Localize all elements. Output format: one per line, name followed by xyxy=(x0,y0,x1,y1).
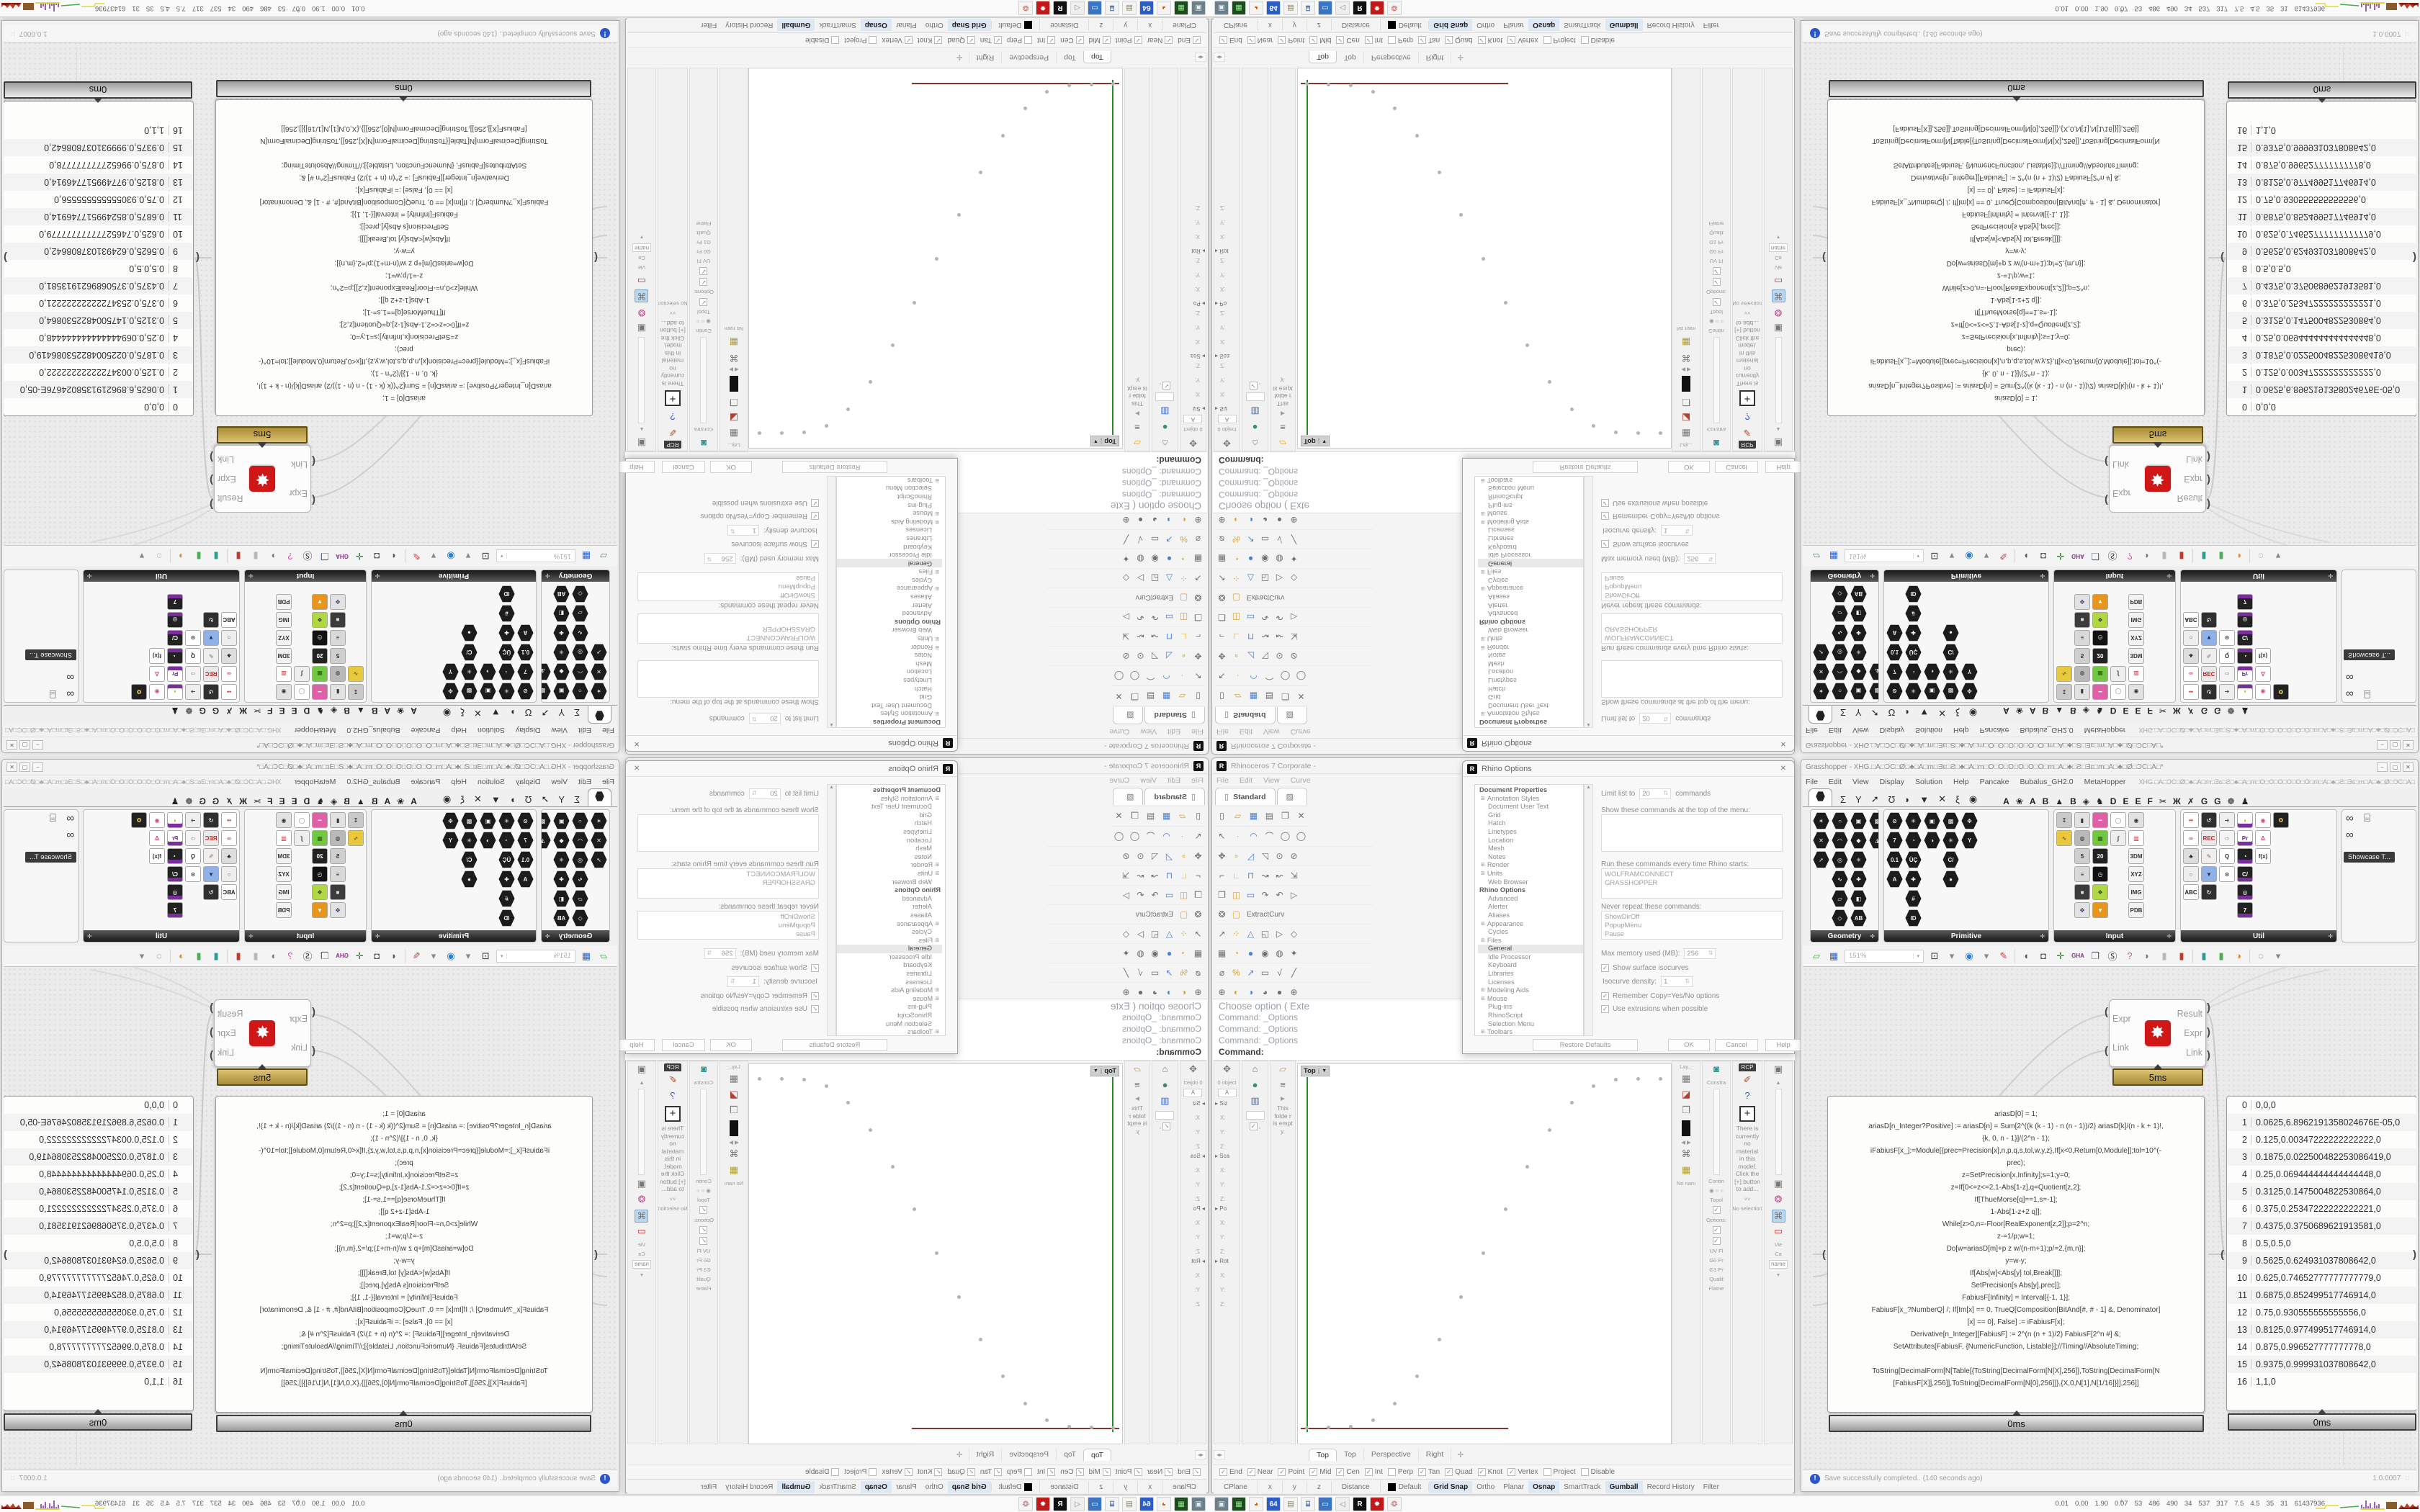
category-tab[interactable]: ◉ xyxy=(442,706,452,720)
viewport-title[interactable]: Top | ▼ xyxy=(1090,436,1119,446)
palette-icon[interactable]: ◿ xyxy=(1162,649,1176,664)
viewport-tab-right[interactable]: Right xyxy=(1419,52,1452,64)
data-row[interactable]: 20.125,0.00347222222222222,0 xyxy=(2227,1131,2416,1148)
limit-spinner[interactable]: 20 xyxy=(1639,788,1671,799)
toolbar-icon[interactable]: ▦ xyxy=(1247,689,1260,704)
viewport-tab-top[interactable]: Top xyxy=(1083,52,1111,64)
expand-icon[interactable]: ✛ xyxy=(1870,573,1875,580)
palette-icon[interactable]: ↜ xyxy=(1273,629,1286,644)
component-icon[interactable]: ◧ xyxy=(1850,605,1867,622)
palette-icon[interactable]: ⊕ xyxy=(1287,985,1301,1000)
osnap-mid[interactable]: ✓Mid xyxy=(1089,1468,1111,1476)
tree-item-render[interactable]: ⊞Render xyxy=(837,861,942,870)
osnap-point[interactable]: ✓Point xyxy=(1278,36,1304,44)
checkbox-icon[interactable]: ✓ xyxy=(1713,1226,1721,1234)
checkbox-icon[interactable]: ✓ xyxy=(1103,36,1111,44)
data-row[interactable]: 10.0625,6.8962191358024676E-05,0 xyxy=(2227,1114,2416,1131)
osnap-knot[interactable]: ✓Knot xyxy=(918,1468,943,1476)
script-panel[interactable]: ariasD[0] = 1;ariasD[n_Integer?Positive]… xyxy=(215,1096,593,1413)
component-icon[interactable]: ▣ xyxy=(1924,812,1940,829)
checkbox[interactable]: ✓, xyxy=(1250,382,1260,390)
component-icon[interactable]: ↻ xyxy=(2201,884,2217,900)
osnap-near[interactable]: ✓Near xyxy=(1147,1468,1173,1476)
component-icon[interactable]: A xyxy=(1886,870,1903,888)
toolbar-icon[interactable]: · xyxy=(1175,669,1189,684)
panel-input-jaw[interactable]: ( xyxy=(2220,1248,2224,1261)
shell-preview-icon[interactable]: ◗ xyxy=(2141,551,2154,562)
component-icon[interactable]: ∫ xyxy=(2110,830,2126,846)
plugin-tab[interactable]: ◈ xyxy=(2083,796,2089,806)
panel-input-jaw[interactable]: ( xyxy=(196,251,200,264)
top-commands-listbox[interactable] xyxy=(1601,660,1783,698)
data-row[interactable]: 70.4375,0.3750689621913581,0 xyxy=(2227,277,2416,294)
component-icon[interactable]: ∿ xyxy=(1832,624,1848,642)
axes-widget-icon[interactable]: ✛ xyxy=(2054,551,2067,562)
tree-item-files[interactable]: ⊞Files xyxy=(1478,567,1583,576)
component-icon[interactable]: ◑ xyxy=(480,663,496,680)
toolbar-icon[interactable]: ◠ xyxy=(1160,829,1173,844)
component-icon[interactable]: ◯ xyxy=(2110,812,2126,828)
component-icon[interactable]: ✶ xyxy=(591,812,607,829)
plugin-tab[interactable]: D xyxy=(304,796,310,806)
data-row[interactable]: 50.3125,0.1475004822530864,0 xyxy=(2227,1183,2416,1200)
component-icon[interactable]: ◎ xyxy=(2237,612,2253,628)
tree-item-rhino-options[interactable]: Rhino Options xyxy=(1478,886,1583,895)
palette-icon[interactable]: ╱ xyxy=(1287,966,1301,981)
tree-item-general[interactable]: General xyxy=(837,945,942,953)
component-icon[interactable]: ⊘ xyxy=(1886,812,1903,829)
palette-icon[interactable]: ● xyxy=(1162,552,1176,567)
component-icon[interactable]: ◠ xyxy=(1832,832,1848,849)
palette-icon[interactable]: ↗ xyxy=(1215,927,1229,942)
category-tab[interactable]: ◉ xyxy=(1968,792,1978,806)
component-icon[interactable]: ▩ xyxy=(541,812,551,829)
component-icon[interactable]: PDB xyxy=(276,902,292,918)
category-tab[interactable]: ✕ xyxy=(1937,706,1948,720)
category-tab[interactable]: Ʊ xyxy=(524,793,534,806)
extract-curve-button[interactable]: ExtractCurv xyxy=(1136,594,1176,602)
capture-window-icon[interactable]: ❐ xyxy=(318,950,331,962)
toolbar-icon[interactable]: ▱ xyxy=(1231,689,1245,704)
checkbox-icon[interactable]: ✓ xyxy=(1165,1468,1173,1476)
component-icon[interactable]: ◎ xyxy=(167,884,183,900)
goggles-info-icon[interactable]: ∞ xyxy=(2342,810,2357,827)
plugin-tab[interactable]: A xyxy=(2003,796,2009,806)
component-icon[interactable]: ✕ xyxy=(1813,663,1829,680)
checkbox-icon[interactable]: ✓ xyxy=(1713,278,1721,286)
component-icon[interactable]: ABC xyxy=(2183,884,2199,900)
menu-item-solution[interactable]: Solution xyxy=(1915,778,1942,786)
data-row[interactable]: 80.5,0.5,0 xyxy=(2227,1235,2416,1252)
data-row[interactable]: 100.625,0.74652777777777779,0 xyxy=(4,225,193,243)
palette-icon[interactable]: ↗ xyxy=(1244,532,1258,547)
toolbar-tab-next[interactable]: ▨ xyxy=(1277,707,1307,724)
preview-dropdown-icon[interactable]: ▾ xyxy=(427,551,440,562)
wolfram-component[interactable]: ExprLink ✸ ResultExprLink ( ( ) ) ) xyxy=(2109,445,2206,513)
palette-icon[interactable]: ◇ xyxy=(1119,927,1133,942)
palette-icon[interactable]: % xyxy=(1177,966,1191,981)
component-icon[interactable]: ▩ xyxy=(461,683,478,700)
component-icon[interactable]: ➔ xyxy=(2219,812,2235,828)
plugin-tab[interactable]: ♞ xyxy=(2096,706,2104,716)
component-icon[interactable]: ABC xyxy=(221,884,237,900)
component-icon[interactable]: ◮ xyxy=(541,663,551,680)
tree-item-cycles[interactable]: Cycles xyxy=(837,928,942,937)
data-row[interactable]: 130.8125,0.977499517746914,0 xyxy=(2227,174,2416,191)
tree-item-rhinoscript[interactable]: RhinoScript xyxy=(1478,1012,1583,1020)
component-icon[interactable]: 0.1 xyxy=(517,644,534,661)
toolbar-icon[interactable]: ▤ xyxy=(1144,689,1157,704)
system-monitor-icon[interactable]: ▣ xyxy=(1191,1,1206,15)
data-row[interactable]: 140.875,0.996527777777778,0 xyxy=(4,156,193,174)
palette-icon[interactable]: ▦ xyxy=(1191,552,1205,567)
component-icon[interactable]: ∿ xyxy=(348,830,364,846)
selection-lasso-icon[interactable]: ◌ xyxy=(2254,551,2267,562)
palette-icon[interactable]: ◕ xyxy=(1258,513,1272,528)
status-cell-z[interactable]: z xyxy=(1307,19,1332,32)
component-icon[interactable]: Δ xyxy=(2255,830,2271,846)
grasshopper-titlebar[interactable]: Grasshopper - XHG.□A□ƆC□Ø□♣□A□m□Ǝɛ□Ƨ□♣□A… xyxy=(1801,737,2418,752)
panel-icon[interactable]: ▦ xyxy=(730,426,738,439)
menu-item-edit[interactable]: Edit xyxy=(1240,728,1252,737)
panel-input-jaw[interactable]: ( xyxy=(196,1248,200,1261)
scrollbar[interactable] xyxy=(1713,337,1720,423)
plugin-tab[interactable]: G xyxy=(2214,706,2220,716)
gha-icon[interactable]: GHA xyxy=(2071,953,2084,959)
section-header[interactable]: ▸ Po xyxy=(1215,1205,1227,1212)
top-commands-listbox[interactable] xyxy=(1601,814,1783,852)
status-toggle-osnap[interactable]: Osnap xyxy=(861,19,892,32)
red-preview-icon[interactable]: ▮ xyxy=(232,950,245,962)
menu-item-metahopper[interactable]: MetaHopper xyxy=(2084,778,2126,786)
selection-dropdown-icon[interactable]: ▾ xyxy=(135,551,148,562)
panel-output-jaw[interactable]: ) xyxy=(4,251,7,264)
checkbox-icon[interactable]: ✓ xyxy=(1250,382,1258,390)
palette-icon[interactable]: ∟ xyxy=(1229,868,1243,883)
viewport-title[interactable]: Top | ▼ xyxy=(1301,436,1330,446)
input-field[interactable] xyxy=(1246,1111,1265,1120)
plugin-tab[interactable]: ❁ xyxy=(185,796,192,806)
output-jaw[interactable]: ) xyxy=(2207,498,2210,510)
resize-grip[interactable]: ∷ xyxy=(11,1475,15,1482)
tree-item-grid[interactable]: Grid xyxy=(837,811,942,820)
osnap-mid[interactable]: ✓Mid xyxy=(1309,36,1331,44)
link-port[interactable]: Link xyxy=(2112,459,2142,469)
tree-item-idle-processor[interactable]: Idle Processor xyxy=(837,551,942,559)
menu-item-help[interactable]: Help xyxy=(1953,778,1969,786)
section-header[interactable]: ▸ Sca xyxy=(1191,1153,1205,1159)
component-icon[interactable]: ◆ xyxy=(553,832,570,849)
zoom-dropdown-icon[interactable]: ▾ xyxy=(1945,551,1958,562)
checkbox-icon[interactable]: ✓ xyxy=(1247,1468,1255,1476)
component-icon[interactable]: ◮ xyxy=(1869,663,1879,680)
tree-item-hatch[interactable]: Hatch xyxy=(1478,684,1583,693)
component-icon[interactable]: ▮ xyxy=(330,812,346,828)
component-icon[interactable]: ✳ xyxy=(461,663,478,680)
palette-icon[interactable]: ▭ xyxy=(1162,610,1176,625)
expand-icon[interactable]: ✛ xyxy=(375,933,380,940)
component-icon[interactable]: ▣ xyxy=(553,683,570,700)
component-icon[interactable]: ▩ xyxy=(1869,812,1879,829)
component-icon[interactable]: ● xyxy=(461,624,478,642)
volume-icon[interactable]: ◁ xyxy=(1335,1497,1350,1511)
panel-icon[interactable]: ⌂ xyxy=(1252,1063,1258,1076)
palette-icon[interactable]: ↗ xyxy=(1244,966,1258,981)
component-icon[interactable]: C/ xyxy=(2237,866,2253,882)
category-tab[interactable]: Y xyxy=(557,793,566,806)
panel-icon[interactable]: ▱ xyxy=(1134,1063,1141,1076)
speaker-muffler-icon[interactable]: ◖ xyxy=(387,551,400,562)
tree-item-render[interactable]: ⊞Render xyxy=(837,642,942,651)
checkbox-icon[interactable]: ✓ xyxy=(811,512,819,520)
component-icon[interactable]: ✥ xyxy=(442,683,459,700)
palette-icon[interactable]: ▷ xyxy=(1287,888,1301,903)
tree-item-idle-processor[interactable]: Idle Processor xyxy=(1478,551,1583,559)
input-field[interactable]: name xyxy=(1769,243,1788,252)
display-icon[interactable]: ▭ xyxy=(1088,1497,1102,1511)
palette-icon[interactable]: ❂ xyxy=(1191,590,1205,606)
tree-item-linetypes[interactable]: Linetypes xyxy=(837,675,942,684)
menu-item-pancake[interactable]: Pancake xyxy=(411,778,441,786)
extrusions-checkbox[interactable]: ✓ Use extrusions when possible xyxy=(1601,1005,1787,1013)
component-icon[interactable]: C/ xyxy=(167,630,183,646)
display-icon[interactable]: ▭ xyxy=(1318,1497,1332,1511)
expand-icon[interactable]: ✛ xyxy=(2328,573,2333,580)
status-toggle-smarttrack[interactable]: SmartTrack xyxy=(815,1481,860,1493)
viewport-top[interactable]: Top | ▼ xyxy=(748,1063,1123,1444)
input-field[interactable]: name xyxy=(632,243,651,252)
checkbox-icon[interactable]: ✓ xyxy=(1076,1468,1084,1476)
component-icon[interactable]: ÜÇ xyxy=(498,644,515,661)
component-icon[interactable]: ▥ xyxy=(2128,666,2144,682)
grasshopper-canvas[interactable]: ExprLink ✸ ResultExprLink ( ( ) ) ) 5ms xyxy=(1803,967,2416,1471)
tree-item-toolbars[interactable]: ⊞Toolbars xyxy=(837,476,942,484)
menu-item-file[interactable]: File xyxy=(1191,728,1204,737)
plugin-tab[interactable]: E xyxy=(2123,796,2128,806)
panel-icon[interactable]: ▣ xyxy=(1774,1178,1783,1191)
component-icon[interactable]: ✚ xyxy=(1905,870,1922,888)
plugin-tab[interactable]: E xyxy=(279,796,285,806)
tree-item-keyboard[interactable]: Keyboard xyxy=(837,961,942,970)
palette-icon[interactable]: ◍ xyxy=(1134,946,1147,961)
component-icon[interactable]: ↻ xyxy=(2201,612,2217,628)
data-row[interactable]: 20.125,0.00347222222222222,0 xyxy=(2227,364,2416,381)
panel-icon[interactable]: ▦ xyxy=(1682,335,1690,348)
component-icon[interactable]: ✚ xyxy=(553,870,570,888)
panel-icon[interactable]: ✐ xyxy=(669,1074,677,1087)
palette-icon[interactable]: ✦ xyxy=(1119,946,1133,961)
tree-item-mouse[interactable]: ⊞Mouse xyxy=(837,995,942,1004)
palette-icon[interactable]: ∘ xyxy=(1177,649,1191,664)
plugin-tab[interactable]: ♞ xyxy=(2096,796,2104,806)
data-row[interactable]: 80.5,0.5,0 xyxy=(2227,260,2416,277)
data-row[interactable]: 40.25,0.069444444444444448,0 xyxy=(4,329,193,346)
component-icon[interactable]: ∫ xyxy=(294,666,310,682)
component-icon[interactable]: ▦ xyxy=(2092,830,2108,846)
component-icon[interactable]: # xyxy=(1905,605,1922,622)
component-icon[interactable]: C/ xyxy=(1942,851,1959,868)
data-row[interactable]: 100.625,0.74652777777777779,0 xyxy=(2227,225,2416,243)
component-icon[interactable]: ◉ xyxy=(276,812,292,828)
palette-icon[interactable]: ◔ xyxy=(1177,552,1191,567)
palette-icon[interactable]: ∘ xyxy=(1177,849,1191,864)
plugin-tab[interactable]: Ж xyxy=(2173,706,2181,716)
shell-preview-icon[interactable]: ◗ xyxy=(266,551,279,562)
palette-icon[interactable]: ◇ xyxy=(1287,571,1301,586)
panel-icon[interactable]: ⌘ xyxy=(635,289,649,302)
checkbox[interactable]: ✓ xyxy=(700,298,708,306)
palette-icon[interactable]: ◉ xyxy=(1258,946,1272,961)
component-icon[interactable]: 3DM xyxy=(2128,648,2144,664)
component-icon[interactable]: ● xyxy=(1942,624,1959,642)
palette-icon[interactable]: ◉ xyxy=(1148,946,1162,961)
status-toggle-ortho[interactable]: Ortho xyxy=(1472,1481,1499,1493)
checkbox-icon[interactable] xyxy=(1024,1468,1032,1476)
plugin-tab[interactable]: G xyxy=(2201,706,2208,716)
custom-preview-icon[interactable]: ▮ xyxy=(2197,551,2210,562)
menu-item-display[interactable]: Display xyxy=(516,778,540,786)
component-icon[interactable]: ♣ xyxy=(221,848,237,864)
link-port[interactable]: Link xyxy=(218,454,234,464)
component-icon[interactable]: Q xyxy=(185,848,201,864)
component-icon[interactable]: ◇ xyxy=(1832,585,1848,603)
preview-dropdown-icon[interactable]: ▾ xyxy=(427,950,440,962)
grasshopper-titlebar[interactable]: Grasshopper - XHG.□A□ƆC□Ø□♣□A□m□Ǝɛ□Ƨ□♣□A… xyxy=(1801,760,2418,775)
expr-port[interactable]: Expr xyxy=(279,1014,308,1024)
expr-port[interactable]: Expr xyxy=(2184,1028,2202,1038)
checkbox-icon[interactable]: ✓ xyxy=(1365,1468,1373,1476)
plugin-tab[interactable]: ❀ xyxy=(2016,796,2023,806)
component-icon[interactable]: •• xyxy=(221,812,237,828)
palette-icon[interactable]: ◍ xyxy=(1273,552,1286,567)
expand-icon[interactable]: ✛ xyxy=(248,573,254,580)
palette-icon[interactable]: ⌀ xyxy=(1191,532,1205,547)
data-row[interactable]: 161,1,0 xyxy=(2227,1373,2416,1390)
palette-icon[interactable]: ⊕ xyxy=(1119,985,1133,1000)
wolfram-icon[interactable]: ✸ xyxy=(1036,1497,1050,1511)
component-icon[interactable]: ❂ xyxy=(131,684,147,700)
expand-icon[interactable]: ⊞ xyxy=(1481,870,1485,878)
expand-icon[interactable]: ✛ xyxy=(2328,933,2333,940)
tree-item-mouse[interactable]: ⊞Mouse xyxy=(1478,995,1583,1004)
speaker-icon[interactable]: ◘ xyxy=(370,950,383,961)
tree-item-mesh[interactable]: Mesh xyxy=(1478,845,1583,853)
palette-icon[interactable]: ◱ xyxy=(1148,571,1162,586)
palette-icon[interactable]: ↝ xyxy=(1258,629,1272,644)
panel-icon[interactable]: ▦ xyxy=(730,335,738,348)
startup-commands-listbox[interactable]: WOLFRAMCONNECTGRASSHOPPER xyxy=(637,613,819,644)
component-icon[interactable]: ▣ xyxy=(1924,683,1940,700)
data-row[interactable]: 150.9375,0.999931037808642,0 xyxy=(2227,139,2416,156)
tree-item-render[interactable]: ⊞Render xyxy=(1478,861,1583,870)
wolfram-icon[interactable]: ✸ xyxy=(1370,1497,1384,1511)
category-tab[interactable]: ξ xyxy=(1954,706,1961,719)
palette-icon[interactable]: ⊘ xyxy=(1119,649,1133,664)
plugin-tab[interactable]: B xyxy=(2043,796,2049,806)
component-icon[interactable]: ▱ xyxy=(572,605,588,622)
checkbox-icon[interactable] xyxy=(869,36,877,44)
output-jaw[interactable]: ) xyxy=(210,1002,213,1014)
data-row[interactable]: 120.75,0.930555555555556,0 xyxy=(2227,1304,2416,1321)
expand-icon[interactable]: ⊞ xyxy=(1481,986,1485,995)
output-jaw[interactable]: ) xyxy=(210,498,213,510)
expand-icon[interactable]: ⊞ xyxy=(935,509,939,518)
component-icon[interactable]: ▱ xyxy=(572,890,588,907)
palette-icon[interactable]: ↷ xyxy=(1148,888,1162,903)
close-icon[interactable]: ✕ xyxy=(1777,763,1790,774)
toolbar-icon[interactable]: ❐ xyxy=(1128,689,1142,704)
data-row[interactable]: 30.1875,0.022500482253086419,0 xyxy=(4,346,193,364)
minimize-icon[interactable]: – xyxy=(2377,762,2388,772)
component-icon[interactable]: 0.1 xyxy=(517,851,534,868)
startup-commands-listbox[interactable]: WOLFRAMCONNECTGRASSHOPPER xyxy=(637,868,819,899)
tree-item-mouse[interactable]: ⊞Mouse xyxy=(1478,509,1583,518)
toolbar-icon[interactable]: ❐ xyxy=(1278,689,1292,704)
checkbox-icon[interactable]: ✓ xyxy=(811,992,819,1000)
viewport-tab-right[interactable]: Right xyxy=(969,1449,1002,1461)
shaded-preview-icon[interactable]: ◑ xyxy=(2232,551,2245,562)
tree-item-alerter[interactable]: Alerter xyxy=(837,600,942,609)
grasshopper-canvas[interactable]: ExprLink ✸ ResultExprLink ( ( ) ) ) 5ms xyxy=(4,967,617,1471)
memory-spinner[interactable]: 256 xyxy=(1684,948,1716,959)
osnap-point[interactable]: ✓Point xyxy=(1278,1468,1304,1476)
panel-icon[interactable]: ◪ xyxy=(730,410,738,423)
palette-icon[interactable]: ▦ xyxy=(1191,946,1205,961)
expand-icon[interactable]: ⊞ xyxy=(1481,584,1485,593)
red-preview-icon[interactable]: ▮ xyxy=(2175,551,2188,562)
toolbar-icon[interactable]: ❐ xyxy=(1128,809,1142,824)
expand-icon[interactable]: ⊞ xyxy=(1481,937,1485,945)
green-preview-icon[interactable]: ▮ xyxy=(192,551,205,562)
tree-item-mesh[interactable]: Mesh xyxy=(837,659,942,667)
wire-preview-icon[interactable]: ▮ xyxy=(249,950,262,962)
category-tab[interactable]: ξ xyxy=(459,706,466,719)
section-header[interactable]: ▸ Sca xyxy=(1191,353,1205,359)
input-jaw[interactable]: ( xyxy=(2105,1006,2108,1018)
expand-icon[interactable]: ✛ xyxy=(375,573,380,580)
category-tab[interactable]: ✕ xyxy=(1937,792,1948,806)
component-icon[interactable]: ▦ xyxy=(312,830,328,846)
new-viewport-button[interactable]: ✛ xyxy=(956,53,963,63)
data-row[interactable]: 50.3125,0.1475004822530864,0 xyxy=(2227,312,2416,329)
open-document-icon[interactable]: ▱ xyxy=(597,551,610,562)
palette-icon[interactable]: ⊓ xyxy=(1244,629,1258,644)
component-icon[interactable]: ◔ xyxy=(1905,832,1922,849)
menu-item-display[interactable]: Display xyxy=(516,726,540,735)
never-repeat-listbox[interactable]: ShowDirOffPopupMenuPause xyxy=(1601,911,1783,940)
checkbox-icon[interactable]: ✓ xyxy=(1134,1468,1142,1476)
component-icon[interactable]: ○ xyxy=(221,866,237,882)
category-tab[interactable]: ▼ xyxy=(1918,793,1930,806)
tree-item-keyboard[interactable]: Keyboard xyxy=(1478,961,1583,970)
component-icon[interactable]: AB xyxy=(553,585,570,603)
palette-icon[interactable]: ╱ xyxy=(1287,532,1301,547)
search-icon[interactable]: Ⓢ xyxy=(2106,949,2119,963)
checkbox-icon[interactable]: ✓ xyxy=(1336,36,1344,44)
checkbox-icon[interactable]: ✓ xyxy=(811,1005,819,1013)
maximize-icon[interactable]: ▢ xyxy=(19,762,30,772)
checkbox-icon[interactable]: ✓ xyxy=(967,1468,975,1476)
expand-icon[interactable]: ⊞ xyxy=(935,709,939,718)
palette-icon[interactable]: ◉ xyxy=(1258,552,1272,567)
toolbar-icon[interactable]: ↖ xyxy=(1191,669,1205,684)
expand-icon[interactable]: ⊞ xyxy=(1481,634,1485,642)
panel-icon[interactable]: ◙ xyxy=(1713,1063,1719,1076)
status-cell-y[interactable]: y xyxy=(1113,1481,1137,1493)
input-field[interactable]: A xyxy=(1218,415,1237,423)
component-icon[interactable]: REC xyxy=(203,666,219,682)
palette-icon[interactable]: ◹ xyxy=(1148,649,1162,664)
